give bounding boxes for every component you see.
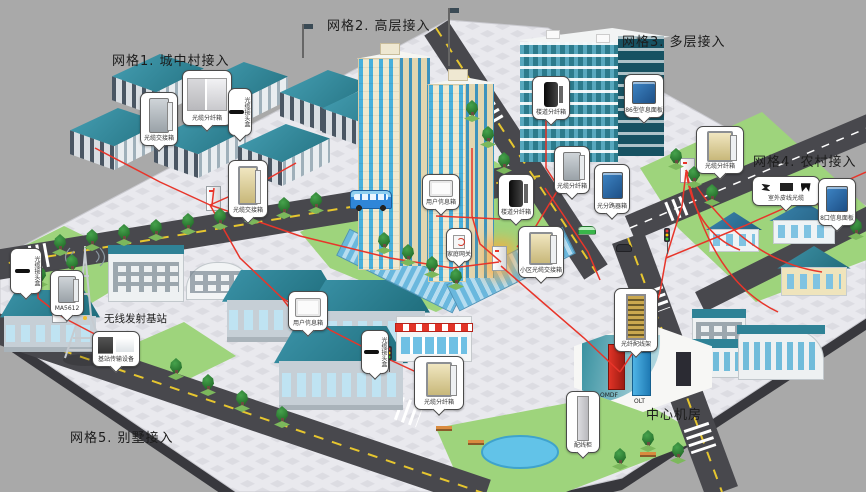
- callout-label: 光纤配线架: [621, 342, 651, 349]
- callout-g2-wangguan: 家庭网关: [446, 228, 472, 262]
- callout-label: 基站传输设备: [98, 357, 134, 364]
- gateway-shape: [453, 235, 465, 249]
- gateway-device-icon: [449, 231, 469, 252]
- rack-device-icon: [617, 291, 655, 342]
- label-grid3: 网格3. 多层接入: [622, 31, 726, 50]
- callout-g3-mianban: 86型信息面板: [624, 74, 664, 118]
- callout-label: 用户信息箱: [293, 321, 323, 328]
- callout-label: 小区光缆交接箱: [520, 268, 562, 275]
- tree-icon: [612, 448, 628, 470]
- callout-left-jietouhe: 光缆接头盒: [10, 248, 42, 294]
- callout-g3-fenxianxiang2: 光缆分纤箱: [554, 146, 590, 194]
- tools-shape: [759, 182, 812, 193]
- tree-icon: [668, 148, 684, 170]
- callout-g2-jiaojiexiang: 小区光缆交接箱: [518, 226, 564, 278]
- wallbox-shape: [429, 180, 453, 197]
- twobox-shape: [187, 78, 227, 112]
- callout-g3-fenluqixiang: 光分路器箱: [594, 164, 630, 214]
- callout-label: MA5612: [55, 306, 80, 313]
- callout-label: 楼道分纤箱: [501, 210, 531, 217]
- tree-icon: [308, 192, 324, 214]
- twobox-device-icon: [185, 73, 229, 116]
- callout-g4-mianban: 8口信息面板: [818, 178, 856, 226]
- traffic-light: [664, 228, 670, 242]
- tree-icon: [274, 406, 290, 428]
- callout-tower-chuanshu: 基站传输设备: [92, 331, 140, 367]
- cab2-device-icon: [417, 359, 461, 400]
- tree-icon: [400, 244, 416, 266]
- panel-device-icon: [597, 167, 627, 204]
- callout-label: 光缆分纤箱: [705, 164, 735, 171]
- tree-icon: [168, 358, 184, 380]
- pole-shape: [544, 82, 558, 107]
- callout-label: 光缆接头盒: [379, 337, 386, 367]
- callout-label: 光缆交接箱: [233, 208, 263, 215]
- cab2-device-icon: [699, 129, 741, 164]
- panel-shape: [826, 186, 848, 212]
- label-central-room: 中心机房: [646, 404, 702, 423]
- callout-left-ma5612: MA5612: [50, 270, 84, 316]
- car: [578, 226, 596, 235]
- tallcab-device-icon: [569, 394, 597, 443]
- callout-label: 光缆交接箱: [144, 136, 174, 143]
- tallcab-shape: [577, 396, 589, 441]
- office-building: [108, 250, 184, 302]
- tree-icon: [424, 256, 440, 278]
- label-grid4: 网格4. 农村接入: [753, 151, 857, 170]
- bus: [350, 190, 392, 209]
- tree-icon: [704, 184, 720, 206]
- tree-icon: [276, 197, 292, 219]
- tree-icon: [200, 374, 216, 396]
- callout-label: 86型信息面板: [625, 108, 663, 115]
- bench: [640, 452, 656, 457]
- panel-shape: [632, 81, 656, 104]
- panel-device-icon: [821, 181, 853, 216]
- olt-label: OLT: [634, 398, 645, 405]
- callout-room-peixiangui: 配线柜: [566, 391, 600, 453]
- callout-label: 8口信息面板: [820, 216, 854, 223]
- callout-g1-jiaojiexiang-2: 光缆交接箱: [228, 160, 268, 218]
- tree-icon: [670, 442, 686, 464]
- cabinet-device-icon: [53, 273, 81, 306]
- cabinet-device-icon: [143, 95, 175, 136]
- cab2-shape: [238, 166, 258, 205]
- wallbox-device-icon: [425, 177, 457, 200]
- tools-device-icon: [755, 179, 817, 196]
- label-grid1: 网格1. 城中村接入: [112, 50, 230, 69]
- wallbox-shape: [295, 298, 321, 318]
- tree-icon: [84, 229, 100, 251]
- cab2-device-icon: [521, 229, 561, 268]
- olt-cabinet: [632, 352, 651, 396]
- callout-label: 光缆分纤箱: [424, 400, 454, 407]
- bench: [468, 440, 484, 445]
- callout-label: 光缆分纤箱: [192, 116, 222, 123]
- tree-icon: [148, 219, 164, 241]
- callout-label: 楼道分纤箱: [536, 110, 566, 117]
- callout-label: 用户信息箱: [426, 200, 456, 207]
- rooftop-flag: [302, 24, 304, 58]
- rack-shape: [626, 294, 646, 340]
- callout-g4-pixian: 室外皮线光缆: [752, 176, 820, 206]
- tree-icon: [234, 390, 250, 412]
- machine-room-door: [676, 352, 691, 386]
- cab2-shape: [529, 232, 553, 266]
- callout-g1-fenxianxiang: 光缆分纤箱: [182, 70, 232, 126]
- street-cabinet: [492, 246, 507, 271]
- rural-house: [780, 246, 848, 296]
- cabinet-device-icon: [557, 149, 587, 184]
- screens-device-icon: [95, 334, 137, 357]
- callout-g5-fenxianxiang: 光缆分纤箱: [414, 356, 464, 410]
- label-grid5: 网格5. 别墅接入: [70, 427, 174, 446]
- label-grid2: 网格2. 高层接入: [327, 15, 431, 34]
- cabinet-shape: [58, 276, 75, 304]
- callout-label: 光缆分纤箱: [557, 184, 587, 191]
- callout-g5-jietouhe: 光缆接头盒: [361, 330, 389, 374]
- screens-shape: [98, 337, 135, 353]
- tree-icon: [464, 100, 480, 122]
- tree-icon: [180, 213, 196, 235]
- tree-icon: [640, 430, 656, 452]
- callout-g1-jiaojiexiang-1: 光缆交接箱: [140, 92, 178, 146]
- panel-device-icon: [627, 77, 661, 108]
- cab2-shape: [707, 131, 732, 161]
- roadside-shop-building: [738, 330, 824, 380]
- tree-icon: [116, 224, 132, 246]
- cab2-shape: [426, 362, 452, 397]
- rooftop-flag: [448, 8, 450, 66]
- cabinet-shape: [149, 98, 169, 133]
- pole-shape: [509, 180, 523, 206]
- rural-house: [708, 212, 760, 252]
- bench: [436, 426, 452, 431]
- tree-icon: [480, 126, 496, 148]
- callout-g5-xinxixiang: 用户信息箱: [288, 291, 328, 331]
- tree-icon: [52, 234, 68, 256]
- tree-icon: [448, 268, 464, 290]
- callout-g2-xinxixiang: 用户信息箱: [422, 174, 460, 210]
- pole-device-icon: [535, 79, 567, 110]
- scene-canvas: OMDF OLT 网格1. 城中村接入 网格2. 高层接入 网格3. 多层接入 …: [0, 0, 866, 492]
- tree-icon: [212, 208, 228, 230]
- pond: [482, 436, 558, 468]
- panel-shape: [602, 172, 623, 199]
- pole-device-icon: [501, 177, 531, 210]
- callout-label: 室外皮线光缆: [768, 196, 804, 203]
- cabinet-shape: [563, 152, 582, 181]
- callout-g1-jietouhe: 光缆接头盒: [228, 88, 252, 136]
- callout-g3-fenxianxiang: 楼道分纤箱: [532, 76, 570, 120]
- callout-label: 家庭网关: [447, 252, 471, 259]
- cab2-device-icon: [231, 163, 265, 208]
- callout-label: 配线柜: [574, 443, 592, 450]
- wallbox-device-icon: [291, 294, 325, 321]
- highrise-tower: [358, 58, 430, 270]
- callout-label: 光分路器箱: [597, 204, 627, 211]
- callout-g2-fenxianxiang: 楼道分纤箱: [498, 174, 534, 220]
- callout-label: 光缆接头盒: [32, 256, 39, 286]
- tree-icon: [496, 152, 512, 174]
- label-base-station: 无线发射基站: [104, 311, 167, 326]
- tree-icon: [376, 232, 392, 254]
- car: [616, 244, 632, 252]
- callout-g4-fenxianxiang: 光缆分纤箱: [696, 126, 744, 174]
- callout-room-odf: 光纤配线架: [614, 288, 658, 352]
